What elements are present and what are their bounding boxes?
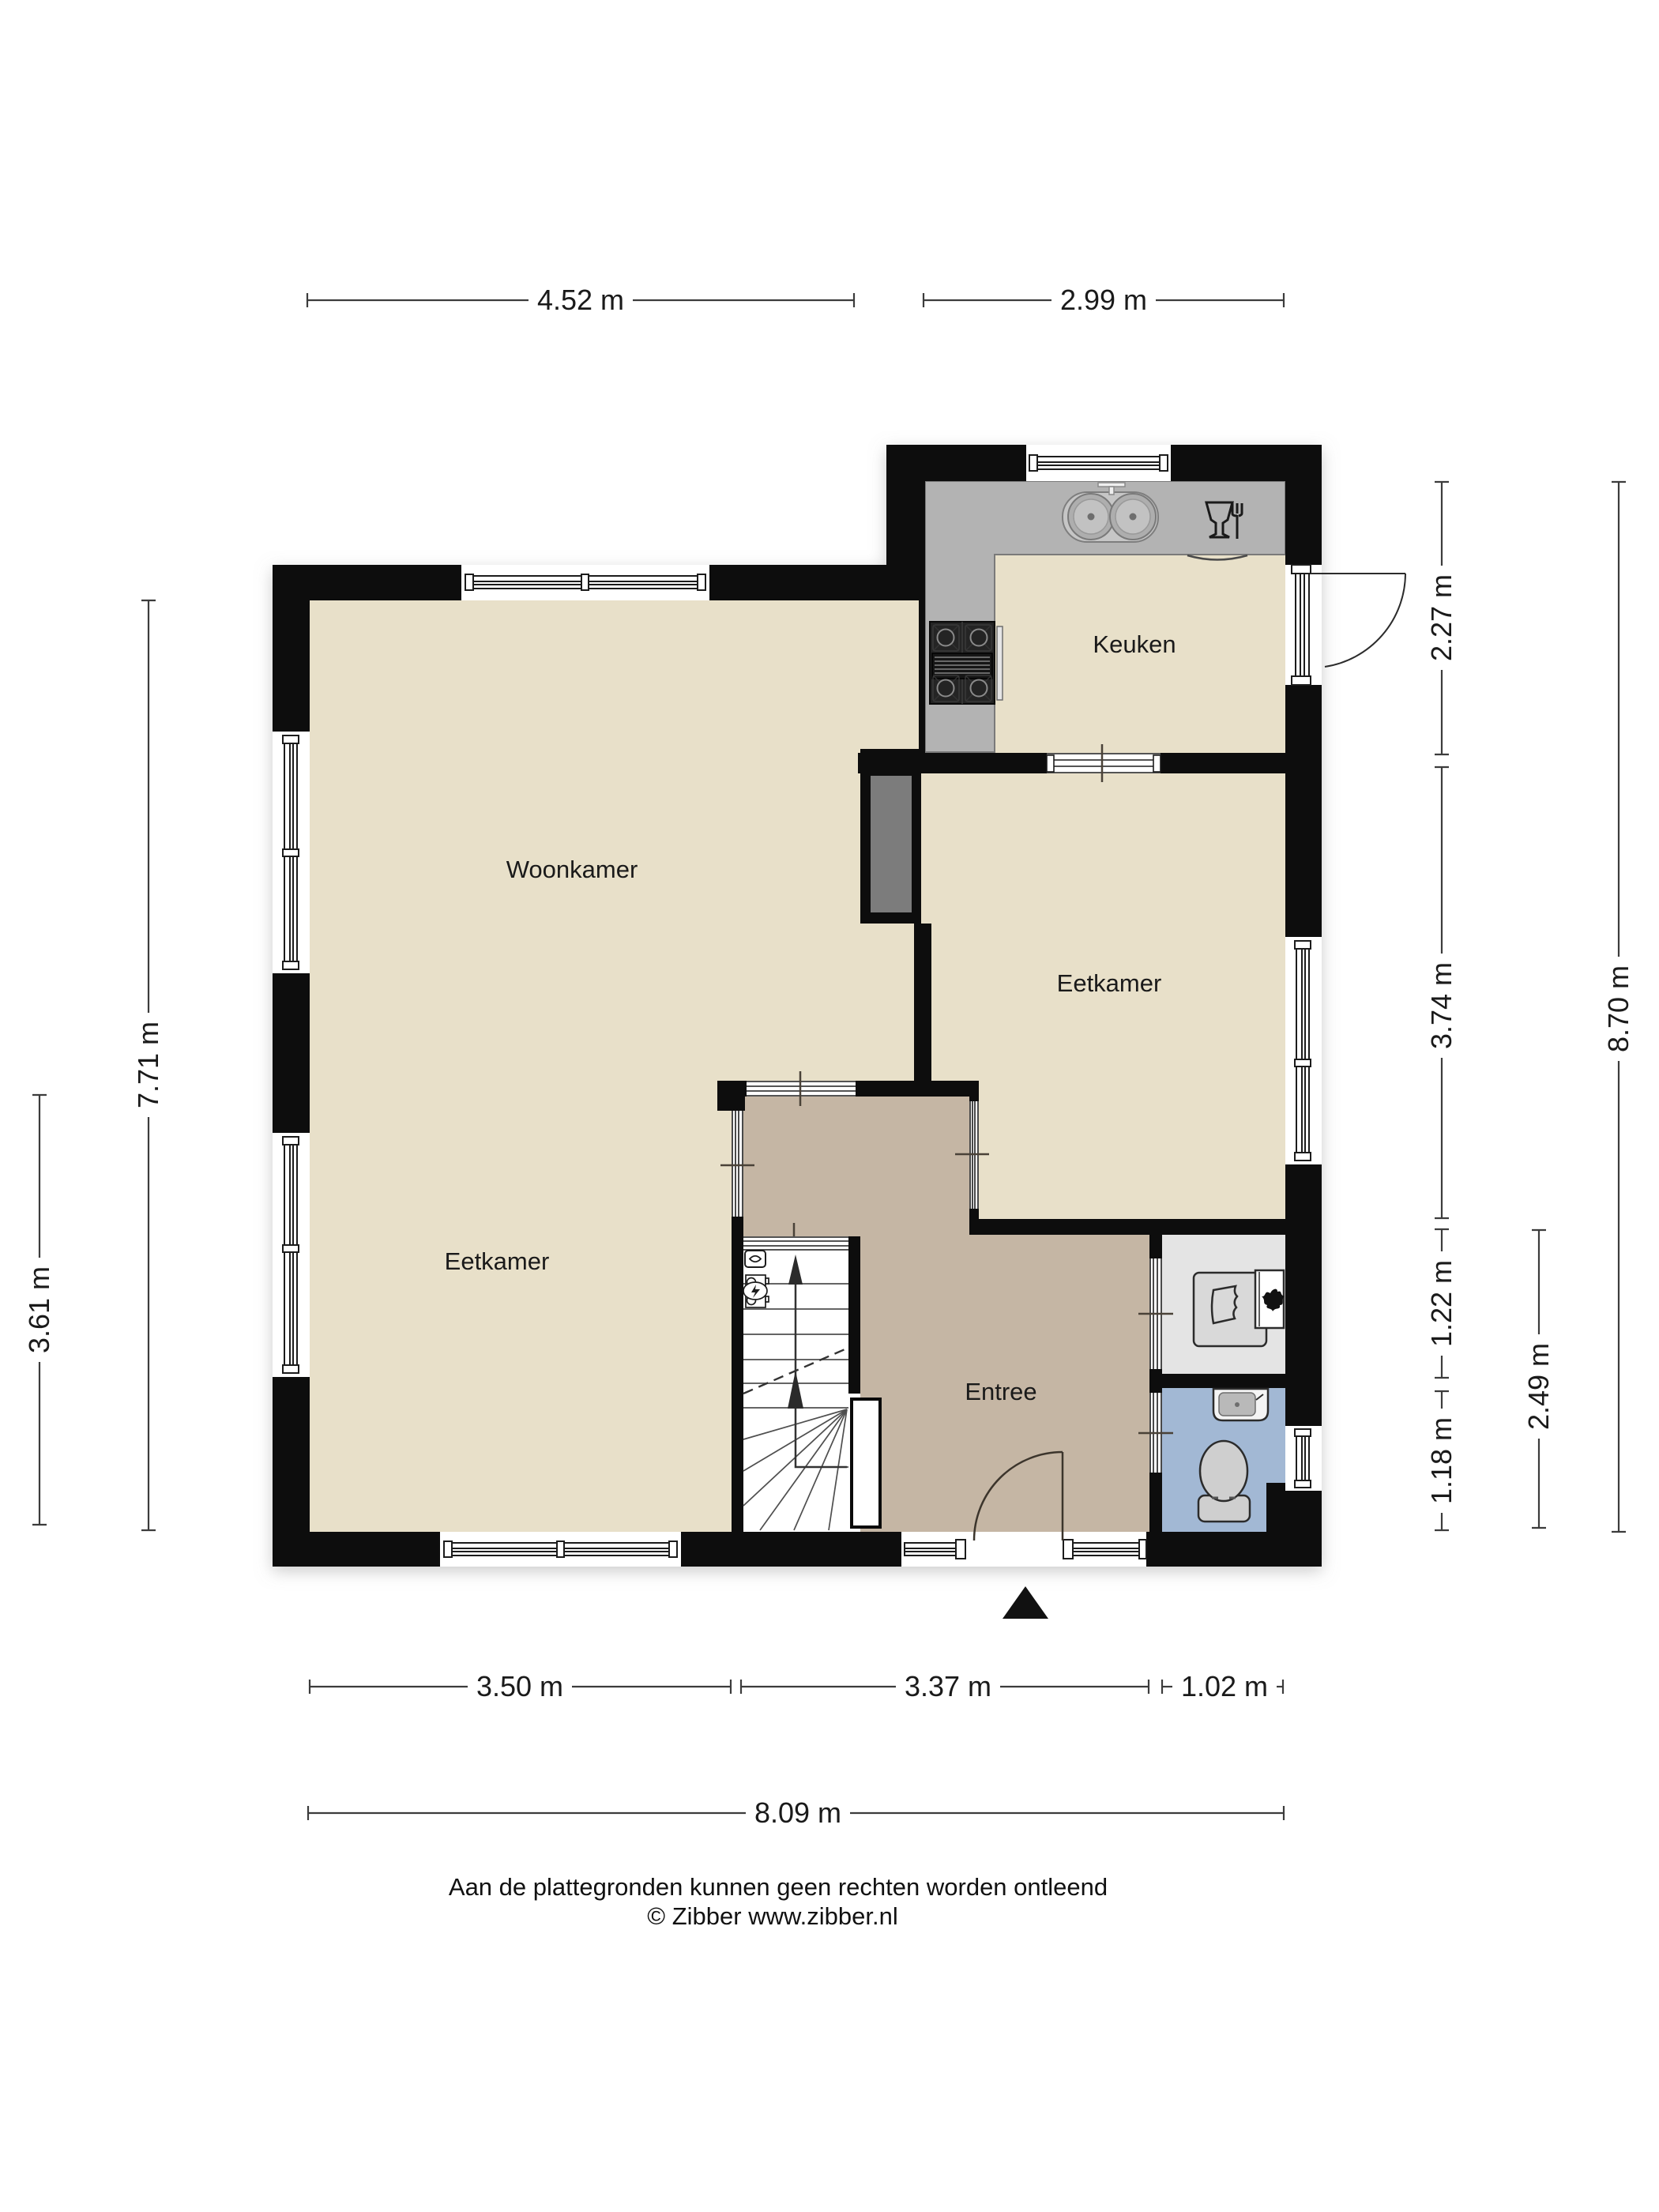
svg-text:2.27 m: 2.27 m bbox=[1425, 574, 1458, 661]
svg-text:8.09 m: 8.09 m bbox=[754, 1796, 841, 1829]
svg-text:1.18 m: 1.18 m bbox=[1425, 1417, 1458, 1504]
svg-text:2.99 m: 2.99 m bbox=[1060, 284, 1147, 316]
svg-text:3.37 m: 3.37 m bbox=[905, 1670, 991, 1702]
svg-text:4.52 m: 4.52 m bbox=[537, 284, 624, 316]
svg-text:© Zibber www.zibber.nl: © Zibber www.zibber.nl bbox=[647, 1902, 897, 1930]
svg-text:Aan de plattegronden kunnen ge: Aan de plattegronden kunnen geen rechten… bbox=[449, 1873, 1108, 1901]
svg-text:8.70 m: 8.70 m bbox=[1602, 965, 1635, 1052]
svg-text:Woonkamer: Woonkamer bbox=[506, 856, 638, 883]
svg-text:3.50 m: 3.50 m bbox=[476, 1670, 563, 1702]
svg-text:3.61 m: 3.61 m bbox=[23, 1266, 55, 1353]
svg-text:Entree: Entree bbox=[965, 1378, 1036, 1405]
svg-text:1.02 m: 1.02 m bbox=[1181, 1670, 1268, 1702]
svg-text:Eetkamer: Eetkamer bbox=[1057, 969, 1162, 997]
svg-text:Keuken: Keuken bbox=[1093, 630, 1176, 658]
svg-text:2.49 m: 2.49 m bbox=[1522, 1343, 1555, 1430]
svg-text:Eetkamer: Eetkamer bbox=[445, 1247, 550, 1275]
svg-text:1.22 m: 1.22 m bbox=[1425, 1260, 1458, 1347]
svg-text:7.71 m: 7.71 m bbox=[132, 1021, 164, 1108]
svg-text:3.74 m: 3.74 m bbox=[1425, 962, 1458, 1049]
